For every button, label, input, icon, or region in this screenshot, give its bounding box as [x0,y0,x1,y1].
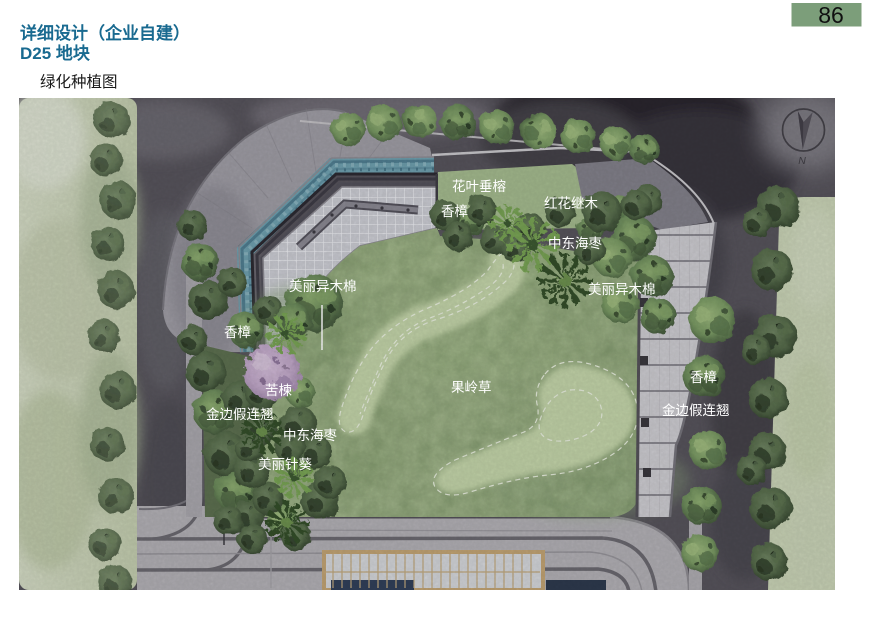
svg-text:86: 86 [818,2,844,28]
svg-text:苦楝: 苦楝 [265,383,292,398]
svg-text:D25 地块: D25 地块 [20,43,91,63]
svg-text:绿化种植图: 绿化种植图 [40,73,118,91]
svg-text:美丽异木棉: 美丽异木棉 [289,279,357,294]
svg-text:金边假连翘: 金边假连翘 [662,403,730,418]
svg-text:红花继木: 红花继木 [544,196,598,211]
svg-text:金边假连翘: 金边假连翘 [206,407,274,422]
svg-text:美丽异木棉: 美丽异木棉 [588,282,656,297]
svg-text:美丽针葵: 美丽针葵 [258,457,312,472]
svg-text:中东海枣: 中东海枣 [548,236,602,251]
svg-text:香樟: 香樟 [690,370,717,385]
svg-text:中东海枣: 中东海枣 [283,428,337,443]
svg-text:香樟: 香樟 [224,325,251,340]
svg-text:详细设计（企业自建）: 详细设计（企业自建） [20,23,190,43]
svg-text:香樟: 香樟 [441,204,468,219]
svg-text:N: N [798,155,806,167]
svg-text:果岭草: 果岭草 [451,380,492,395]
svg-text:花叶垂榕: 花叶垂榕 [452,179,506,194]
